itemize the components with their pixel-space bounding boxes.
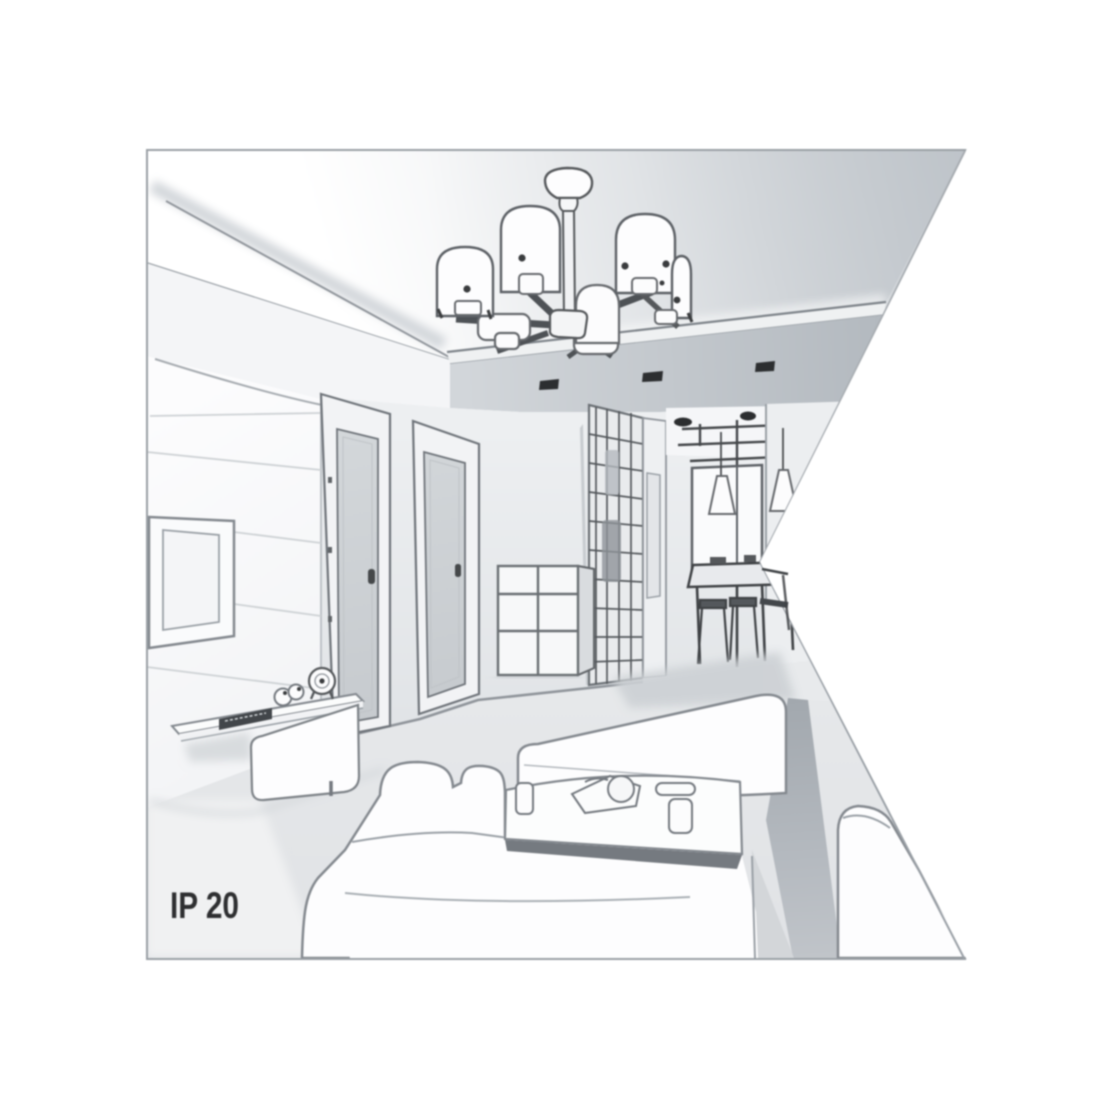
svg-text:IP 20: IP 20: [170, 885, 239, 926]
